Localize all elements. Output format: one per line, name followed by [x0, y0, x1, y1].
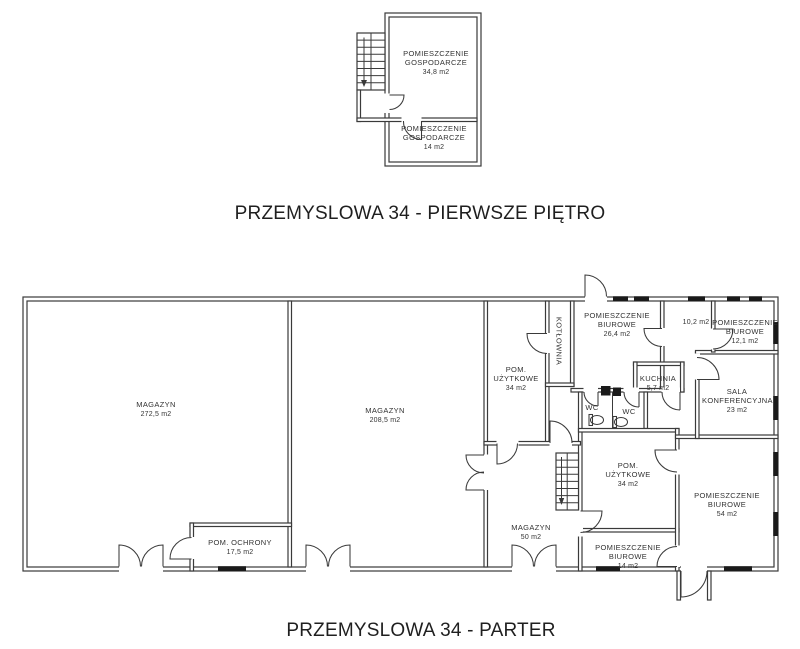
room-label-biurowe-14: POMIESZCZENIE BIUROWE 14 m2: [588, 543, 668, 571]
room-label-biurowe-26: POMIESZCZENIE BIUROWE 26,4 m2: [577, 311, 657, 339]
ground-floor-stairs: [556, 453, 579, 510]
room-label-magazyn-272: MAGAZYN 272,5 m2: [111, 400, 201, 419]
room-label-gospodarcze-1: POMIESZCZENIE GOSPODARCZE 34,8 m2: [396, 49, 476, 77]
room-label-pom-ochrony: POM. OCHRONY 17,5 m2: [195, 538, 285, 557]
room-label-kotlownia: KOTŁOWNIA: [555, 311, 564, 371]
floorplan-page: POMIESZCZENIE GOSPODARCZE 34,8 m2 POMIES…: [0, 0, 800, 649]
title-parter: PRZEMYSLOWA 34 - PARTER: [286, 620, 555, 642]
room-label-biurowe-121: POMIESZCZENIE BIUROWE 12,1 m2: [705, 318, 785, 346]
room-label-pom-uzytkowe-bottom: POM. UŻYTKOWE 34 m2: [600, 461, 656, 489]
room-label-biurowe-54: POMIESZCZENIE BIUROWE 54 m2: [687, 491, 767, 519]
room-label-wc-2: WC: [619, 407, 639, 416]
room-label-pom-uzytkowe-top: POM. UŻYTKOWE 34 m2: [488, 365, 544, 393]
room-label-magazyn-50: MAGAZYN 50 m2: [486, 523, 576, 542]
title-pierwsze-pietro: PRZEMYSLOWA 34 - PIERWSZE PIĘTRO: [235, 203, 606, 225]
room-label-gospodarcze-2: POMIESZCZENIE GOSPODARCZE 14 m2: [394, 124, 474, 152]
room-label-kuchnia: KUCHNIA 5,7 m2: [628, 374, 688, 393]
room-label-magazyn-208: MAGAZYN 208,5 m2: [340, 406, 430, 425]
room-label-sala-konferencyjna: SALA KONFERENCYJNA 23 m2: [702, 387, 772, 415]
room-label-wc-1: WC: [582, 403, 602, 412]
